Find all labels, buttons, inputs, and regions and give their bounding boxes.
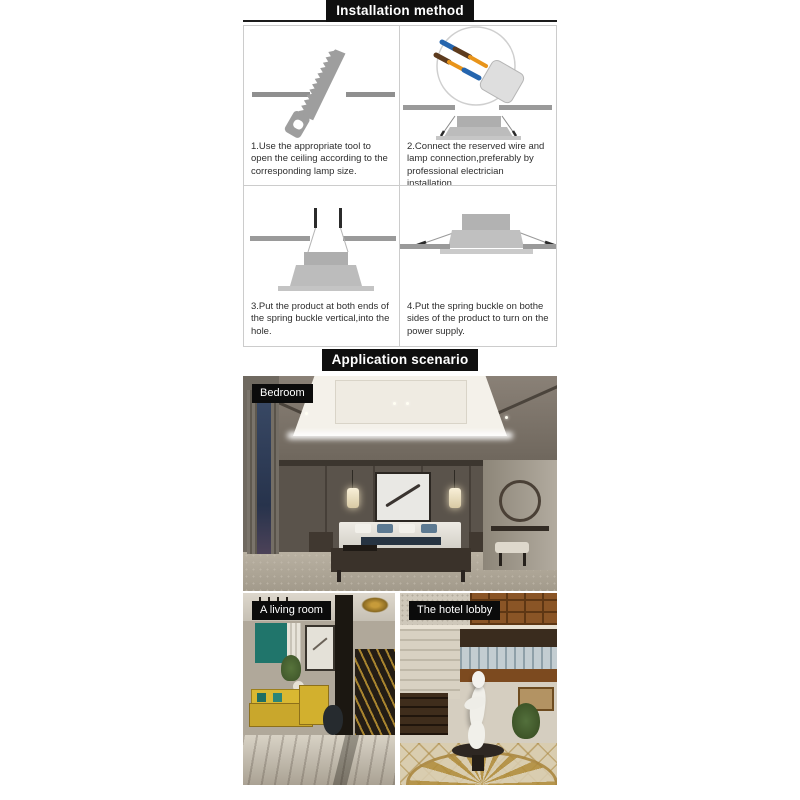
pillow: [355, 524, 371, 533]
recessed-downlight: [406, 402, 409, 405]
wire-connector-lamp-icon: [400, 26, 556, 140]
bedroom-ceiling-tray-inner: [335, 380, 467, 424]
bed-end-bench: [331, 548, 471, 572]
downlight-icon: [436, 116, 521, 140]
spring-buckle-vertical-icon: [244, 186, 400, 300]
bench-tray: [343, 545, 377, 551]
installation-step-3: 3.Put the product at both ends of the sp…: [244, 186, 400, 346]
curtain: [247, 390, 257, 554]
lantern-cord: [454, 470, 455, 488]
gold-chandelier: [361, 597, 389, 613]
product-detail-image: Installation method 1.Use the appropriat…: [0, 0, 800, 800]
living-room-scene-photo: A living room: [243, 593, 395, 785]
saw-icon: [282, 43, 345, 140]
ceiling-bar-right: [343, 236, 396, 241]
ceiling-bar-right: [499, 105, 552, 110]
ceiling-bar-left: [403, 105, 455, 110]
lamp-flange: [440, 249, 533, 254]
installation-step-1: 1.Use the appropriate tool to open the c…: [244, 26, 400, 186]
ceiling-bar-left: [250, 236, 310, 241]
recessed-downlight: [505, 416, 508, 419]
ceiling-bar-left: [252, 92, 310, 97]
marble-floor: [243, 735, 395, 785]
potted-plant: [512, 703, 540, 739]
ceiling-bar-left: [400, 244, 450, 249]
step-2-caption: 2.Connect the reserved wire and lamp con…: [400, 140, 556, 186]
stool-leg: [523, 553, 526, 566]
installation-steps-grid: 1.Use the appropriate tool to open the c…: [243, 25, 557, 347]
installation-step-4: 4.Put the spring buckle on bothe sides o…: [400, 186, 556, 346]
teal-accent-panel: [255, 623, 287, 663]
lamp-body: [448, 230, 524, 248]
application-title: Application scenario: [322, 349, 479, 371]
wall-artwork: [375, 472, 431, 522]
hanging-lantern: [347, 488, 359, 508]
console-table: [491, 526, 549, 531]
installation-step-2: 2.Connect the reserved wire and lamp con…: [400, 26, 556, 186]
saw-cut-ceiling-icon: [244, 26, 400, 140]
dark-vase: [323, 705, 343, 735]
lantern-cord: [352, 470, 353, 488]
mezzanine-opening: [460, 629, 557, 647]
spring-pins-icon: [308, 208, 348, 252]
living-room-label: A living room: [252, 601, 331, 620]
bedroom-scene-photo: Bedroom: [243, 376, 557, 591]
curtain: [271, 390, 279, 554]
bench-leg: [461, 570, 465, 582]
step-4-caption: 4.Put the spring buckle on bothe sides o…: [400, 300, 556, 338]
window-night-view: [257, 392, 271, 554]
hotel-lobby-scene-photo: The hotel lobby: [400, 593, 557, 785]
nightstand: [309, 532, 333, 552]
display-shelving: [400, 693, 448, 735]
hotel-lobby-label: The hotel lobby: [409, 601, 500, 620]
bed-runner: [361, 537, 441, 545]
bedroom-label: Bedroom: [252, 384, 313, 403]
installation-title: Installation method: [326, 0, 474, 22]
stone-texture-wall: [400, 629, 460, 699]
content-column: Installation method 1.Use the appropriat…: [243, 0, 557, 785]
sculpture-base: [468, 721, 485, 749]
step-3-caption: 3.Put the product at both ends of the sp…: [244, 300, 399, 338]
application-header: Application scenario: [243, 349, 557, 371]
stairwell: [355, 649, 395, 737]
stool: [495, 542, 529, 553]
potted-plant: [281, 655, 301, 681]
gold-stair-railing: [355, 649, 395, 737]
stool-leg: [499, 553, 502, 566]
downlight-icon: [278, 252, 374, 291]
recessed-downlight: [305, 412, 308, 415]
table-pedestal: [472, 755, 484, 771]
cove-light-glow: [287, 432, 513, 439]
scene-row: A living room: [243, 593, 557, 785]
sculpture-head: [472, 671, 485, 688]
teal-cushion: [257, 693, 266, 702]
artwork-branch: [385, 484, 421, 508]
ring-decor: [499, 480, 541, 522]
pillow: [377, 524, 393, 533]
lamp-heatsink: [462, 214, 510, 230]
hanging-lantern: [449, 488, 461, 508]
wall-artwork: [305, 625, 335, 671]
ceiling-bar-right: [346, 92, 395, 97]
spring-buckle-installed-icon: [400, 186, 556, 300]
artwork-twig: [312, 637, 327, 650]
step-1-caption: 1.Use the appropriate tool to open the c…: [244, 140, 399, 178]
pillow: [399, 524, 415, 533]
bench-leg: [337, 570, 341, 582]
installation-header: Installation method: [243, 0, 557, 22]
recessed-downlight: [393, 402, 396, 405]
teal-cushion: [273, 693, 282, 702]
ceiling-bar-right: [523, 244, 556, 249]
pillow: [421, 524, 437, 533]
glass-railing: [460, 647, 557, 669]
